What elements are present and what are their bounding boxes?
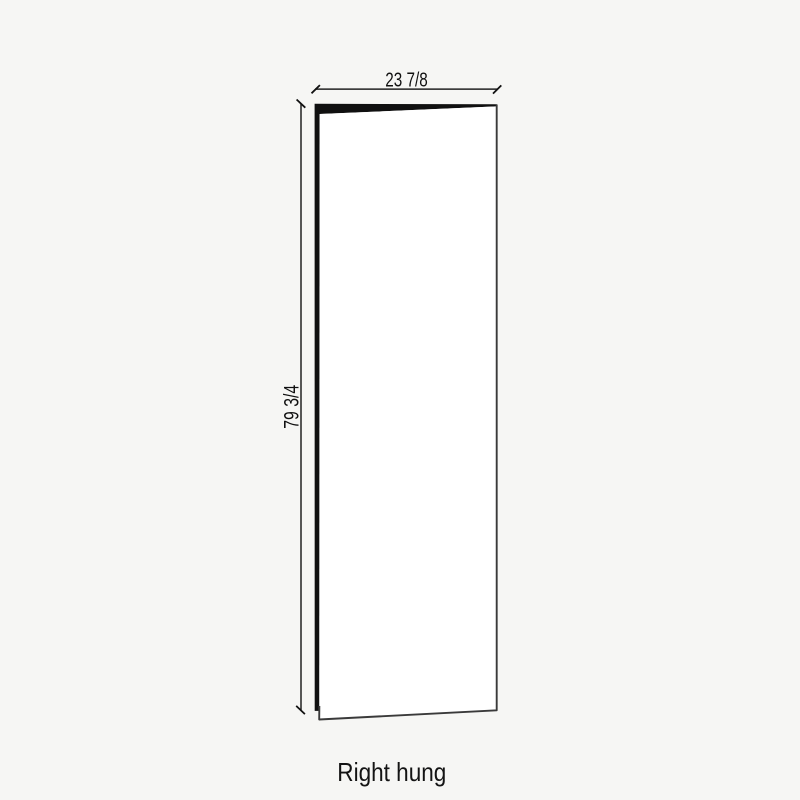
svg-text:23 7/8: 23 7/8 bbox=[385, 68, 428, 91]
svg-text:Right hung: Right hung bbox=[337, 757, 446, 787]
svg-text:79 3/4: 79 3/4 bbox=[281, 385, 304, 429]
